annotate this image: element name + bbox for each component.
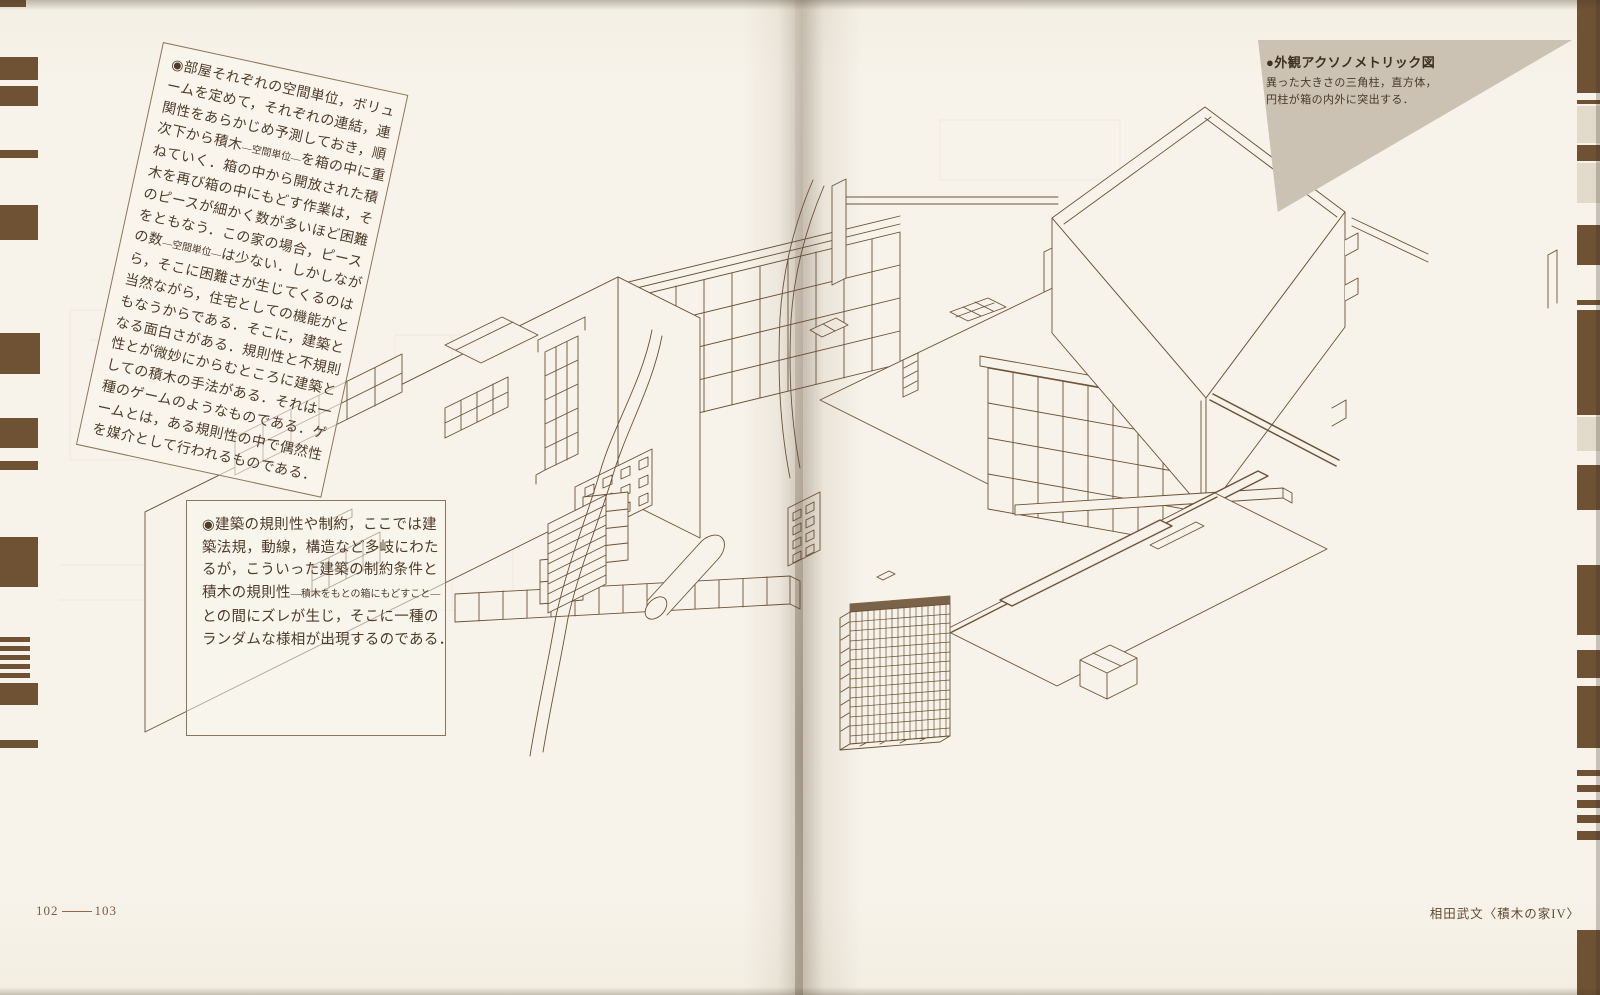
book-spread: ●外観アクソノメトリック図 異った大きさの三角柱，直方体，円柱が箱の内外に突出す…: [0, 0, 1600, 995]
registration-stripe: [0, 205, 38, 240]
registration-stripe: [0, 637, 30, 642]
text-line: るが，こういった建築の制約条件と: [202, 559, 430, 582]
registration-stripe: [0, 673, 30, 678]
figure-caption-title: ●外観アクソノメトリック図: [1266, 52, 1516, 71]
text-line: 異った大きさの三角柱，直方体，: [1266, 75, 1516, 92]
mesh-box: [840, 571, 950, 750]
registration-stripe: [0, 646, 30, 651]
folio-page-numbers: 102 103: [36, 903, 117, 919]
registration-stripe: [0, 333, 40, 374]
registration-stripe: [0, 537, 38, 587]
figure-caption: ●外観アクソノメトリック図 異った大きさの三角柱，直方体，円柱が箱の内外に突出す…: [1266, 52, 1516, 109]
registration-stripe: [0, 86, 38, 106]
registration-stripe: [0, 150, 38, 158]
page-edge-top: [0, 0, 1600, 10]
note-box: ◉建築の規則性や制約，ここでは建築法規，動線，構造など多岐にわたるが，こういった…: [186, 500, 446, 736]
text-segment: るが，こういった建築の制約条件と: [202, 562, 438, 578]
text-line: 築法規，動線，構造など多岐にわた: [202, 537, 430, 560]
page-edge-bottom: [0, 987, 1600, 995]
page-edge-right: [1596, 0, 1600, 995]
folio-left: 102: [36, 903, 59, 919]
text-segment: 異った大きさの三角柱，直方体，: [1266, 77, 1437, 89]
text-line: ◉建築の規則性や制約，ここでは建: [202, 514, 430, 537]
registration-stripe: [0, 418, 38, 448]
text-segment: の数: [133, 229, 164, 250]
text-segment: ランダムな様相が出現するのである．: [202, 632, 453, 648]
text-line: との間にズレが生じ，そこに一種の: [202, 606, 430, 629]
registration-stripe: [0, 740, 38, 748]
text-line: 積木の規則性—積木をもとの箱にもどすこと—: [202, 582, 430, 607]
text-segment: 円柱が箱の内外に突出する．: [1266, 94, 1414, 106]
registration-stripe: [0, 664, 30, 669]
note-box-text: ◉建築の規則性や制約，ここでは建築法規，動線，構造など多岐にわたるが，こういった…: [202, 514, 430, 652]
registration-stripe: [0, 461, 38, 470]
registration-stripe: [0, 683, 38, 705]
inline-annotation: —積木をもとの箱にもどすこと—: [291, 589, 441, 600]
folio-rule: [62, 911, 92, 912]
text-line: ランダムな様相が出現するのである．: [202, 629, 430, 652]
registration-stripe: [0, 655, 30, 660]
folio-right: 103: [95, 903, 118, 919]
text-segment: との間にズレが生じ，そこに一種の: [202, 609, 439, 625]
text-segment: 築法規，動線，構造など多岐にわた: [202, 540, 439, 556]
registration-stripe: [0, 57, 38, 80]
figure-caption-text: 異った大きさの三角柱，直方体，円柱が箱の内外に突出する．: [1266, 75, 1516, 109]
credit-line: 相田武文〈積木の家IV〉: [1280, 903, 1580, 922]
text-segment: ◉建築の規則性や制約，ここでは建: [202, 517, 437, 533]
perforated-box: [788, 492, 820, 566]
text-segment: 積木の規則性: [202, 585, 291, 601]
tile-walkway: [455, 576, 800, 622]
text-line: 円柱が箱の内外に突出する．: [1266, 92, 1516, 109]
far-right-bracket: [1352, 218, 1557, 308]
